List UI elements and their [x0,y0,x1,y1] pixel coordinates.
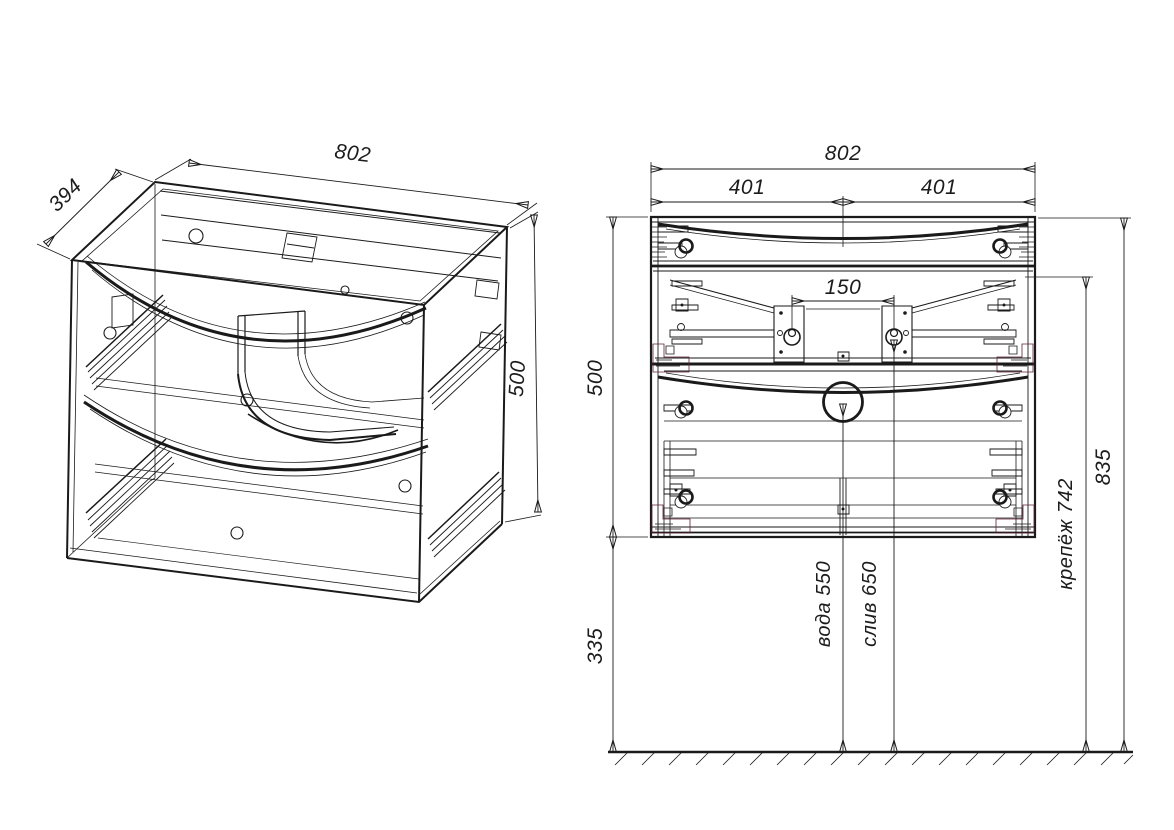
dim-water-supply: вода 550 [813,404,843,752]
drawer-slides-right [430,330,507,557]
water-supply-label: вода 550 [813,561,835,647]
lower-drawer-front-curve [658,377,1028,393]
drawer-slides-left [88,300,174,538]
cabinet-top-rim-inner [82,189,498,301]
dim-overall-height: 835 [1092,218,1124,752]
floor-hatching [615,752,1133,765]
hardware-holes [104,229,413,539]
mounting-bracket-left [774,306,804,362]
cabinet-height-label: 500 [584,360,607,397]
isometric-view: 802 394 500 [37,140,541,602]
cabinet-top-rim [72,182,507,305]
cabinet-vertical-edges [67,227,507,602]
front-half-left-label: 401 [729,176,766,199]
drawer-slides-right-rail [428,324,501,539]
iso-height-label: 500 [505,360,530,398]
bracket-spacing-label: 150 [825,276,862,299]
dim-iso-height: 500 [505,212,541,522]
dim-front-width: 802 [651,142,1035,169]
dim-bracket-spacing: 150 [792,276,894,301]
dim-iso-depth: 394 [37,169,153,259]
upper-drawer-curve [86,262,426,341]
shelf-pin-hole [678,324,685,331]
shelf-pin-hole [1002,324,1009,331]
dim-drain-height: слив 650 [859,340,894,752]
mounting-bracket-right [882,306,912,362]
dim-mounting-height: крепёж 742 [1055,277,1086,752]
siphon-cutout [238,311,424,443]
drain-height-label: слив 650 [859,561,881,647]
front-width-label: 802 [825,142,862,165]
overall-height-label: 835 [1092,449,1115,486]
cabinet-bottom-edges [67,524,502,602]
upper-drawer-curve-thin [87,256,425,348]
floor-clearance-label: 335 [584,628,607,665]
dim-floor-clearance: 335 [584,537,613,752]
vanity-cabinet-technical-drawing: 802 394 500 [0,0,1174,830]
mounting-height-label: крепёж 742 [1055,478,1077,590]
front-half-right-label: 401 [921,176,958,199]
drawing-canvas: 802 394 500 [0,0,1174,830]
dim-cabinet-height: 500 [584,217,613,537]
dim-front-half-right: 401 [843,176,1035,202]
front-view: 802 401 401 150 500 335 835 крепёж 742 [584,142,1133,765]
iso-width-label: 802 [333,140,372,167]
extension-lines [606,162,1131,537]
dim-front-half-left: 401 [651,176,843,202]
